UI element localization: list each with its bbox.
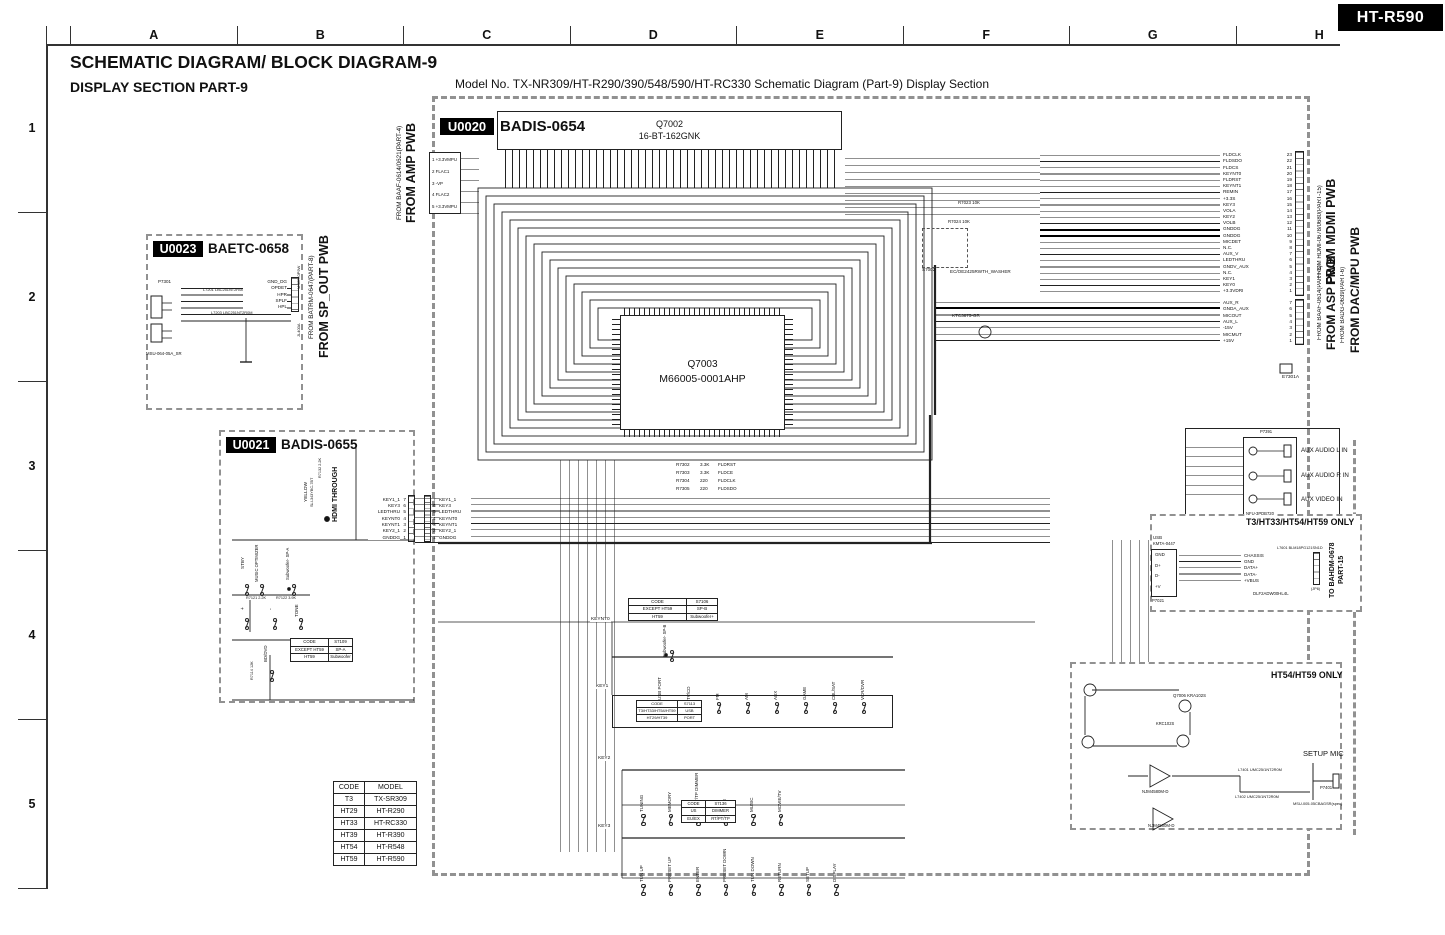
component-symbols [0, 0, 1445, 935]
schematic-page: HT-R590 SCHEMATIC DIAGRAM/ BLOCK DIAGRAM… [0, 0, 1445, 935]
